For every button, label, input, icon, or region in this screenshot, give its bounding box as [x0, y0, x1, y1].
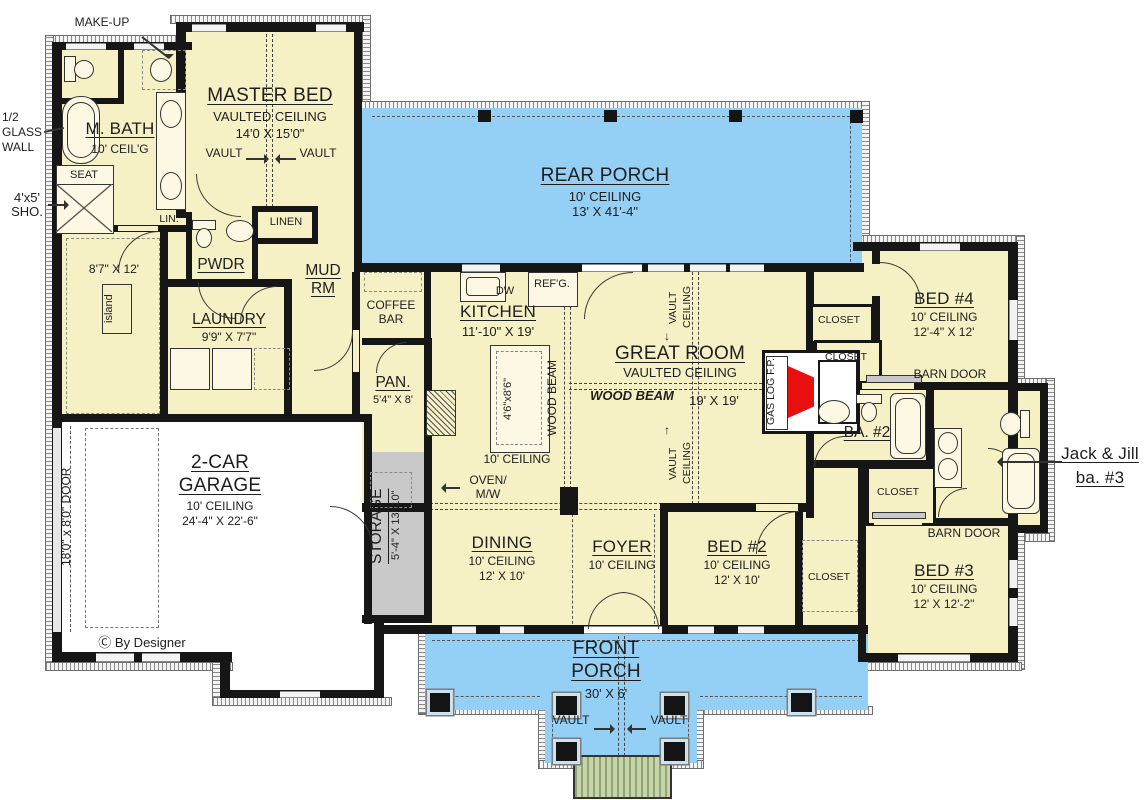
window [738, 626, 764, 634]
room-label-front-porch-line2: PORCH [560, 661, 652, 682]
room-label-bed3: BED #3 [898, 561, 990, 580]
sink-icon [160, 172, 182, 200]
hatch [846, 662, 1022, 671]
room-label-mud-line2: RM [298, 280, 348, 297]
great-room-ceiling: VAULTED CEILING [602, 366, 758, 381]
vault-arrowhead [270, 154, 280, 164]
rear-porch-area [362, 108, 862, 268]
wall [424, 338, 432, 622]
porch-post [729, 110, 742, 122]
wall [256, 206, 316, 212]
hatch [45, 662, 233, 671]
great-room-dims: 19' X 19' [682, 394, 746, 409]
closet-label: CLOSET [800, 572, 858, 584]
garage-dims: 24'-4" X 22'-6" [160, 515, 280, 528]
garage-door-label: 18'0" x 8'0" DOOR [60, 456, 80, 578]
wall [1012, 525, 1048, 533]
laundry-counter [254, 348, 290, 390]
kitchen-dims: 11'-10" X 19' [430, 325, 566, 340]
window [500, 626, 524, 634]
laundry-dims: 9'9" X 7'7" [170, 331, 288, 344]
porch-column [664, 742, 685, 761]
door-opening [862, 383, 914, 389]
bed2-dims: 12' X 10' [692, 574, 782, 587]
barn-door-label: BARN DOOR [920, 527, 1008, 540]
sink-icon [818, 400, 850, 424]
washer-icon [170, 348, 210, 390]
vault-arrow-down: ↓ [660, 330, 674, 343]
ceiling-break-line [430, 503, 662, 510]
kitchen-ceiling: 10' CEILING [470, 453, 564, 466]
window [316, 24, 346, 32]
sink-icon [938, 458, 958, 480]
master-bed-dims: 14'0 X 15'0" [182, 127, 358, 142]
shower-arrowhead [64, 200, 74, 210]
vault-ceiling-label: CEILING [682, 432, 696, 494]
room-label-laundry: LAUNDRY [170, 311, 288, 328]
coffee-bar-line2: BAR [360, 313, 422, 326]
hatch [212, 697, 392, 706]
room-label-pan: PAN. [364, 374, 422, 391]
pan-dims: 5'4" X 8' [360, 394, 426, 406]
bed3-ceiling: 10' CEILING [898, 583, 990, 596]
closet-label: CLOSET [818, 352, 874, 364]
room-label-great-room: GREAT ROOM [602, 343, 758, 364]
porch-post [604, 110, 617, 122]
m-bath-ceiling: 10' CEIL'G [64, 143, 176, 156]
oven-label-line2: M/W [462, 488, 514, 501]
window [1009, 300, 1018, 340]
room-label-dining: DINING [456, 533, 548, 552]
seat-label: SEAT [60, 169, 108, 181]
wall [560, 487, 578, 515]
door-opening [118, 226, 158, 231]
toilet-icon [1020, 410, 1030, 438]
room-label-mud-line1: MUD [298, 262, 348, 279]
porch-column [791, 693, 812, 712]
gas-log-label: GAS LOG F.P. [766, 356, 785, 428]
porch-post [850, 110, 863, 123]
wall [52, 414, 372, 422]
sink-icon [226, 220, 254, 242]
vault-ceiling-label: VAULT [668, 436, 682, 492]
window [730, 264, 764, 272]
garage-door-overhead [85, 428, 159, 628]
window [688, 626, 714, 634]
barn-door-label: BARN DOOR [906, 368, 994, 381]
wall [872, 250, 880, 264]
wall [256, 238, 316, 244]
toilet-icon [196, 228, 212, 248]
counter [364, 272, 422, 292]
closet-label: CLOSET [872, 487, 924, 499]
room-label-garage-line2: GARAGE [160, 475, 280, 496]
wall [362, 615, 432, 623]
range-icon [426, 390, 456, 436]
wood-beam-label-vertical: WOOD BEAM [546, 352, 563, 444]
room-label-m-bath: M. BATH [64, 119, 176, 138]
wall [1040, 383, 1048, 533]
porch-dashed-edge [688, 700, 689, 756]
wall [858, 466, 866, 662]
foyer-opening [572, 514, 573, 624]
toilet-icon [74, 60, 94, 79]
refg-label: REF'G. [528, 278, 576, 290]
half-glass-wall-label: 1/2 GLASS WALL [2, 110, 50, 155]
oven-label-line1: OVEN/ [462, 474, 514, 487]
porch-dashed-edge [552, 700, 553, 756]
wall [160, 232, 168, 422]
shower-label-line2: SHO. [4, 205, 50, 220]
bed2-ceiling: 10' CEILING [692, 559, 782, 572]
room-label-master-bed: MASTER BED [182, 85, 358, 106]
garage-ceiling: 10' CEILING [160, 500, 280, 513]
jack-jill-label-line2: ba. #3 [1062, 468, 1138, 487]
window [920, 243, 960, 251]
room-label-ba2: BA. #2 [834, 424, 900, 441]
porch-dashed-edge [850, 116, 851, 262]
sink-icon [938, 432, 958, 454]
wall [660, 503, 668, 631]
window [452, 626, 476, 634]
linen-label: LINEN [256, 216, 316, 228]
room-label-pwdr: PWDR [184, 256, 258, 273]
front-porch-dims: 30' X 6' [560, 687, 652, 702]
oven-arrow [444, 487, 460, 489]
dw-label: DW [488, 285, 522, 297]
wall [374, 616, 384, 698]
window [1009, 560, 1018, 588]
window [690, 264, 726, 272]
bed4-ceiling: 10' CEILING [898, 311, 990, 324]
lin-label: LIN. [152, 214, 186, 226]
toilet-icon [1000, 412, 1022, 436]
window [66, 43, 106, 50]
window [280, 691, 320, 698]
porch-post [478, 110, 491, 122]
porch-dashed-edge [700, 696, 862, 697]
room-label-foyer: FOYER [584, 537, 660, 556]
vault-label: VAULT [202, 147, 246, 160]
front-steps [573, 755, 672, 799]
jack-jill-arrowhead [992, 457, 1002, 467]
floor-plan: MAKE-UP MASTER BED VAULTED CEILING 14'0 … [0, 0, 1145, 800]
window [192, 24, 226, 32]
room-label-bed2: BED #2 [692, 537, 782, 556]
bed3-dims: 12' X 12'-2" [898, 598, 990, 611]
door-opening [582, 264, 642, 272]
jack-jill-label-line1: Jack & Jill [1056, 444, 1144, 463]
room-label-front-porch-line1: FRONT [560, 638, 652, 659]
dining-ceiling: 10' CEILING [456, 555, 548, 568]
dining-dims: 12' X 10' [456, 570, 548, 583]
vault-arrow [246, 158, 266, 160]
vault-arrowhead [622, 724, 632, 734]
porch-column [556, 742, 577, 761]
oven-arrowhead [436, 483, 446, 493]
toilet-icon [861, 402, 877, 422]
storage-dims: 5'-4" X 13'-10" [390, 460, 407, 590]
kitchen-island-dims: 4'6"x8'6" [502, 368, 522, 430]
copyright-label: Ⓒ By Designer [84, 636, 200, 651]
wall [118, 45, 124, 104]
vault-label: VAULT [548, 714, 594, 727]
closet-label: CLOSET [812, 315, 866, 327]
bed4-dims: 12'-4" X 12' [898, 326, 990, 339]
rear-porch-ceiling: 10' CEILING [505, 190, 705, 205]
window [1009, 598, 1018, 626]
room-label-garage-line1: 2-CAR [160, 452, 280, 473]
room-label-kitchen: KITCHEN [430, 302, 566, 321]
porch-column [430, 693, 450, 712]
dryer-icon [212, 348, 252, 390]
master-bed-ceiling: VAULTED CEILING [182, 110, 358, 125]
coffee-bar-line1: COFFEE [360, 299, 422, 312]
door-opening [874, 519, 922, 525]
vault-label: VAULT [296, 147, 340, 160]
vault-ceiling-label: VAULT [668, 280, 682, 336]
door-opening [353, 330, 359, 372]
master-closet-dims: 8'7" X 12' [68, 263, 160, 276]
vault-ceiling-label: CEILING [682, 276, 696, 338]
vault-arrow-up: ↑ [660, 424, 674, 437]
window [142, 653, 180, 662]
jack-jill-arrow [1002, 461, 1062, 463]
window [898, 654, 970, 662]
wall [354, 28, 362, 272]
vault-label: VAULT [646, 714, 692, 727]
wood-beam-label-italic: WOOD BEAM [584, 389, 680, 404]
vault-arrowhead [610, 724, 620, 734]
foyer-ceiling: 10' CEILING [584, 559, 660, 572]
rear-porch-dims: 13' X 41'-4" [505, 205, 705, 220]
door-opening [756, 504, 798, 511]
island-label: island [102, 284, 132, 334]
make-up-label: MAKE-UP [62, 16, 142, 29]
room-label-rear-porch: REAR PORCH [505, 165, 705, 186]
room-label-storage: STORAGE [368, 466, 390, 586]
barn-door-slab [872, 512, 926, 519]
window [648, 264, 684, 272]
window [462, 264, 500, 272]
window [96, 653, 134, 662]
room-label-bed4: BED #4 [898, 289, 990, 308]
make-up-arrowhead [164, 54, 174, 64]
